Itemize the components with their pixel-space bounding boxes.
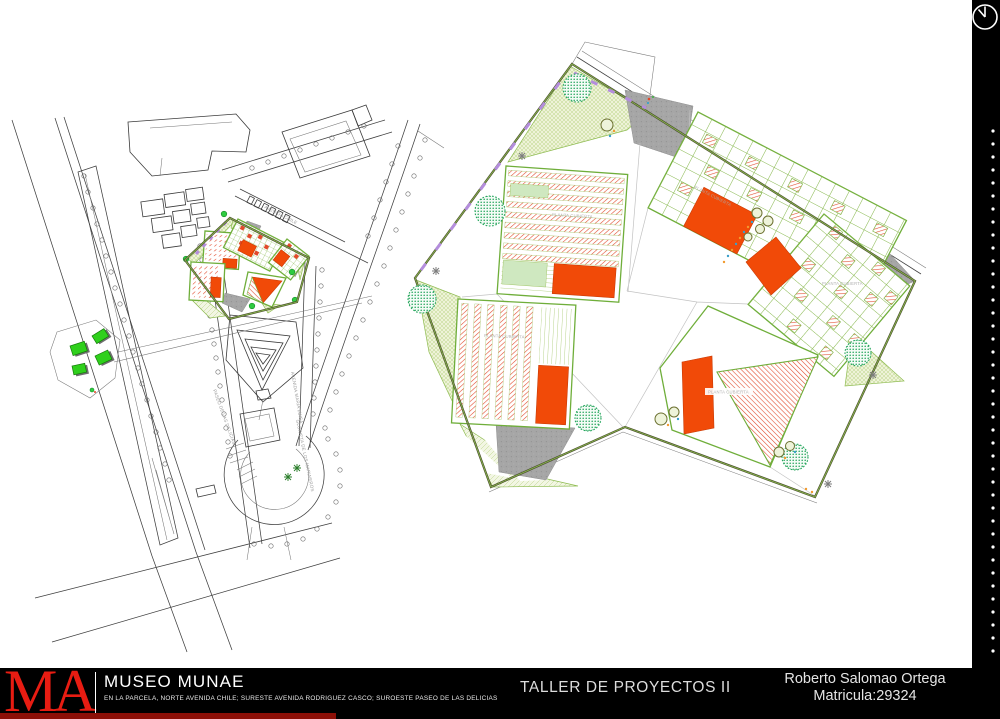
zone-striped-horizontal	[497, 166, 628, 302]
project-description: EN LA PARCELA, NORTE AVENIDA CHILE; SURE…	[104, 695, 498, 702]
zone-striped-vertical	[452, 299, 576, 429]
street-label-avenida-chile: AVENIDA CHILE	[264, 204, 299, 225]
cad-drawing: AVENIDA CHILE PASEO DE LAS DELICIAS AVEN…	[0, 0, 972, 668]
author-name: Roberto Salomao Ortega	[783, 671, 947, 688]
course-title: TALLER DE PROYECTOS II	[520, 679, 731, 697]
mini-zone-striped-2	[189, 262, 225, 302]
green-houses-cluster	[50, 320, 120, 398]
binding-dots	[991, 129, 994, 652]
divider	[95, 672, 96, 715]
binding-strip	[972, 0, 1000, 719]
roof-label-zone4: PLANTA CUBIERTA	[708, 390, 749, 395]
roof-label-zone3: PLANTA CUBIERTA	[822, 281, 863, 286]
street-label-avenida-maria-luisa: AVENIDA MARIA LUISA	[290, 371, 304, 424]
footer-accent-strip	[0, 713, 336, 719]
project-title: MUSEO MUNAE	[104, 672, 498, 692]
street-label-paseo-de-las-delicias: PASEO DE LAS DELICIAS	[212, 389, 237, 446]
clock-icon	[973, 5, 997, 29]
studio-logo: MA	[4, 661, 93, 719]
title-block: MA MUSEO MUNAE EN LA PARCELA, NORTE AVEN…	[0, 668, 1000, 719]
palm-icon	[284, 464, 301, 481]
author-id: Matricula:29324	[783, 688, 947, 705]
drawing-sheet: AVENIDA CHILE PASEO DE LAS DELICIAS AVEN…	[0, 0, 1000, 719]
author-info: Roberto Salomao Ortega Matricula:29324	[783, 671, 947, 704]
street-label-glorieta: GLORIETA DE LOS MARINEROS	[295, 419, 315, 492]
site-location-map: AVENIDA CHILE PASEO DE LAS DELICIAS AVEN…	[12, 105, 444, 652]
project-info: MUSEO MUNAE EN LA PARCELA, NORTE AVENIDA…	[104, 672, 498, 702]
plaza-southwest	[496, 423, 575, 480]
binding-strip-graphics	[972, 0, 1000, 719]
master-plan: PLANTA CUBIERTA PLANTA CUBIERTA PLANTA C…	[408, 42, 926, 503]
